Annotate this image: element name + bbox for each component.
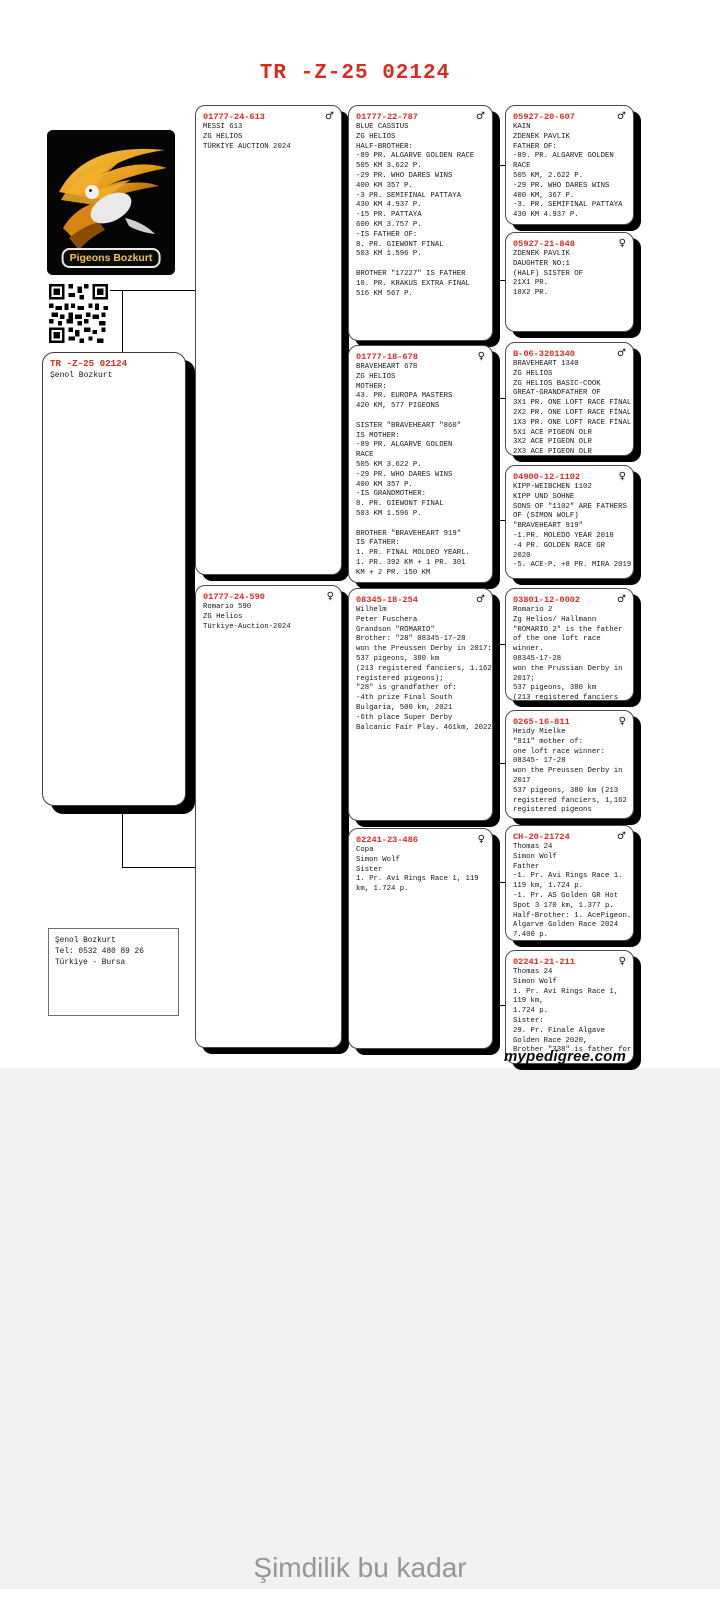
card-text-line: ZG HELIOS	[356, 133, 485, 143]
card-text-line: 08345-17-28	[513, 655, 626, 665]
connector-line	[122, 867, 195, 868]
card-text-line: "28" is grandfather of:	[356, 684, 485, 694]
card-text-line: registered pigeons);	[356, 675, 485, 685]
ring-number: 02241-21-211	[513, 957, 575, 967]
card-text-line: 600 KM 3.757 P.	[356, 221, 485, 231]
card-text-line: BLUE CASSIUS	[356, 123, 485, 133]
pedigree-card: 01777-22-787♂BLUE CASSIUSZG HELIOSHALF-B…	[348, 105, 493, 341]
card-text-line: Half-Brother: 1. AcePigeon.	[513, 912, 626, 922]
card-text-line: 21X1 PR.	[513, 279, 626, 289]
pedigree-card: 0265-16-811♀Heidy Mielke"811" mother of:…	[505, 710, 634, 819]
ring-number: 02241-23-486	[356, 835, 418, 845]
card-text-line: 505 KM 3.622 P.	[356, 461, 485, 471]
card-text-line: -1. Pr. AS Golden GR Hot	[513, 892, 626, 902]
card-text-line: 2017	[513, 777, 626, 787]
card-text-line: 119 km, 1.724 p.	[513, 882, 626, 892]
card-text-line: Spot 3 170 km, 1.377 p.	[513, 902, 626, 912]
ring-number: 0265-16-811	[513, 717, 570, 727]
card-text-line: 18X2 PR.	[513, 289, 626, 299]
card-text-line: RACE	[356, 451, 485, 461]
card-text-line: HALF-BROTHER:	[356, 143, 485, 153]
card-text-line: 516 KM 567 P.	[356, 290, 485, 300]
male-icon: ♂	[617, 112, 626, 122]
male-icon: ♂	[617, 595, 626, 605]
card-text-line: 2X3 ACE PIGEON OLR	[513, 448, 626, 456]
card-text-line: TÜRKİYE AUCTION 2024	[203, 143, 334, 153]
card-text-line: BROTHER "17227" IS FATHER	[356, 270, 485, 280]
female-icon: ♀	[619, 239, 626, 249]
card-text-line: Sister:	[513, 1017, 626, 1027]
pedigree-title: TR -Z-25 02124	[0, 62, 710, 85]
pedigree-card: B-06-3201340♂BRAVEHEART 1340ZG HELIOSZG …	[505, 342, 634, 456]
qr-code	[47, 282, 110, 345]
card-text-line: 8. PR. GIEWONT FINAL	[356, 241, 485, 251]
pedigree-card: 05927-20-607♂KAINZDENEK PAVLIKFATHER OF:…	[505, 105, 634, 225]
card-text-line: ZG HELIOS BASIC-COOK	[513, 380, 626, 390]
connector-line	[343, 703, 344, 938]
male-icon: ♂	[476, 595, 485, 605]
card-text-line: 8. PR. GIEWONT FINAL	[356, 500, 485, 510]
pedigree-card: 02241-23-486♀CopaSimon WolfSister1. Pr. …	[348, 828, 493, 1049]
connector-line	[499, 882, 500, 1006]
connector-line	[492, 222, 499, 223]
card-text-line: -3 PR. SEMIFINAL PATTAYA	[356, 192, 485, 202]
card-text-line: Grandson "ROMARIO"	[356, 626, 485, 636]
connector-line	[492, 462, 499, 463]
card-text-line: won the Preussen Derby in 2017:	[356, 645, 485, 655]
male-icon: ♂	[325, 112, 334, 122]
connector-line	[343, 222, 344, 463]
qr-code-graphic	[47, 282, 110, 345]
card-text-line: won the Prussian Derby in	[513, 665, 626, 675]
card-text-line: Simon Wolf	[356, 856, 485, 866]
card-text-line	[356, 260, 485, 270]
card-text-line: Peter Fuschera	[356, 616, 485, 626]
card-text-line: 10. PR. KRAKUS EXTRA FINAL	[356, 280, 485, 290]
card-text-line: -6th place Super Derby	[356, 714, 485, 724]
card-text-line: 400 KM 357 P.	[356, 481, 485, 491]
pedigree-card: 01777-24-613♂MESSI 613ZG HELIOSTÜRKİYE A…	[195, 105, 342, 575]
female-icon: ♀	[478, 352, 485, 362]
ring-number: 05927-20-607	[513, 112, 575, 122]
connector-line	[492, 937, 499, 938]
mypedigree-watermark: mypedigree.com	[504, 1048, 626, 1065]
ring-number: CH-20-21724	[513, 832, 570, 842]
contact-phone: Tel: 0532 480 89 26	[55, 947, 172, 958]
card-text-line: 430 KM 4.937 P.	[513, 211, 626, 221]
connector-line	[499, 644, 500, 764]
female-icon: ♀	[478, 835, 485, 845]
card-text-line: 2X2 PR. ONE LOFT RACE FİNAL	[513, 409, 626, 419]
card-text-line: registered fanciers, 1,162	[513, 797, 626, 807]
card-text-line: OF (SIMON WOLF)	[513, 512, 626, 522]
card-text-line: GREAT-GRANDFATHER OF	[513, 389, 626, 399]
card-text-line: 1. Pr. Avi Rings Race 1, 119	[356, 875, 485, 885]
card-text-line: Brother: "28" 08345-17-28	[356, 635, 485, 645]
card-text-line: 1. PR. 392 KM + 1 PR. 301	[356, 559, 485, 569]
female-icon: ♀	[619, 717, 626, 727]
card-text-line	[356, 412, 485, 422]
subject-owner: Şenol Bozkurt	[50, 370, 178, 382]
card-text-line: Thomas 24	[513, 843, 626, 853]
ring-number: 03801-12-0002	[513, 595, 580, 605]
card-text-line: -4 PR. GOLDEN RACE GR	[513, 542, 626, 552]
card-text-line: -5. ACE-P. +8 PR. MIRA 2019	[513, 561, 626, 571]
connector-line	[499, 398, 500, 521]
card-text-line: -29 PR. WHO DARES WINS	[356, 172, 485, 182]
ring-number: 01777-24-613	[203, 112, 265, 122]
card-text-line: 3X2 ACE PIGEON OLR	[513, 438, 626, 448]
pedigree-card: CH-20-21724♂Thomas 24Simon WolfFather-1.…	[505, 825, 634, 941]
card-text-line: KIPP UND SOHNE	[513, 493, 626, 503]
card-text-line: 119 km,	[513, 997, 626, 1007]
card-text-line: 1. PR. FINAL MOLDEO YEARL.	[356, 549, 485, 559]
card-text-line: Bulgaria, 500 km, 2021	[356, 704, 485, 714]
pedigree-page: TR -Z-25 02124 Pigeons Bozkurt	[0, 0, 720, 1068]
card-text-line: BROTHER "BRAVEHEART 919"	[356, 530, 485, 540]
male-icon: ♂	[617, 832, 626, 842]
ring-number: 08345-18-254	[356, 595, 418, 605]
card-text-line: of the one loft race	[513, 635, 626, 645]
card-text-line: Balcanic Fair Play. 461km, 2022	[356, 724, 485, 734]
card-text-line: 400 KM 357 P.	[356, 182, 485, 192]
ring-number: 01777-18-678	[356, 352, 418, 362]
card-text-line: 537 pigeons, 380 km	[356, 655, 485, 665]
contact-box: Şenol Bozkurt Tel: 0532 480 89 26 Türkiy…	[48, 928, 179, 1016]
card-text-line: one loft race winner:	[513, 748, 626, 758]
card-text-line: 1.724 p.	[513, 1007, 626, 1017]
card-text-line: 1X3 PR. ONE LOFT RACE FİNAL	[513, 419, 626, 429]
card-text-line: IS MOTHER:	[356, 432, 485, 442]
card-text-line: MESSI 613	[203, 123, 334, 133]
card-text-line: 430 KM 4.937 P.	[356, 201, 485, 211]
card-text-line: 400 KM, 367 P.	[513, 192, 626, 202]
card-text-line: 537 pigeons, 380 km	[513, 684, 626, 694]
card-text-line: "BRAVEHEART 919"	[513, 522, 626, 532]
connector-line	[499, 165, 500, 281]
male-icon: ♂	[617, 349, 626, 359]
card-text-line: Thomas 24	[513, 968, 626, 978]
card-text-line: 505 KM, 2.622 P.	[513, 172, 626, 182]
card-text-line: 5X1 ACE PIGEON OLR	[513, 429, 626, 439]
card-text-line: 3X1 PR. ONE LOFT RACE FİNAL	[513, 399, 626, 409]
card-text-line: 29. Pr. Finale Algave	[513, 1027, 626, 1037]
card-text-line: "ROMARIO 2" is the father	[513, 626, 626, 636]
pedigree-card: 03801-12-0002♂Romario 2Zg Helios/ Hallma…	[505, 588, 634, 701]
card-text-line: KAIN	[513, 123, 626, 133]
card-text-line: -1.PR. MOLEDO YEAR 2018	[513, 532, 626, 542]
card-text-line: SISTER "BRAVEHEART "860"	[356, 422, 485, 432]
card-text-line: RACE	[513, 162, 626, 172]
card-text-line: -IS GRANDMOTHER:	[356, 490, 485, 500]
card-text-line: -89 PR. ALGARVE GOLDEN	[356, 441, 485, 451]
card-text-line: Zg Helios/ Hallmann	[513, 616, 626, 626]
card-text-line: KM + 2 PR. 150 KM	[356, 569, 485, 579]
card-text-line: (HALF) SISTER OF	[513, 270, 626, 280]
card-text-line: FATHER OF:	[513, 143, 626, 153]
card-text-line: ZG HELIOS	[513, 370, 626, 380]
ring-number: B-06-3201340	[513, 349, 575, 359]
card-text-line: BRAVEHEART 678	[356, 363, 485, 373]
card-text-line: ZG HELIOS	[203, 133, 334, 143]
card-text-line: 1. Pr. Avi Rings Race 1,	[513, 988, 626, 998]
card-text-line: ZG Helios	[203, 613, 334, 623]
card-text-line: (213 registered fanciers	[513, 694, 626, 701]
card-text-line: Romario 2	[513, 606, 626, 616]
card-text-line: -4th prize Final South	[356, 694, 485, 704]
male-icon: ♂	[476, 112, 485, 122]
female-icon: ♀	[619, 957, 626, 967]
female-icon: ♀	[327, 592, 334, 602]
pedigree-card: 05927-21-848♀ZDENEK PAVLIKDAUGHTER NO:1(…	[505, 232, 634, 332]
card-text-line: ZDENEK PAVLIK	[513, 133, 626, 143]
card-text-line: ZG HELIOS	[356, 373, 485, 383]
card-text-line: Golden Race 2020,	[513, 1037, 626, 1047]
connector-line	[492, 703, 499, 704]
card-text-line: 503 KM 1.596 P.	[356, 510, 485, 520]
card-text-line: -89 PR. ALGARVE GOLDEN RACE	[356, 152, 485, 162]
card-text-line: Türkiye-Auction-2024	[203, 623, 334, 633]
card-text-line: MOTHER:	[356, 383, 485, 393]
card-text-line: 420 KM, 577 PIGEONS	[356, 402, 485, 412]
card-text-line: 2020	[513, 552, 626, 562]
card-text-line: ZDENEK PAVLIK	[513, 250, 626, 260]
ring-number: 01777-22-787	[356, 112, 418, 122]
card-text-line	[356, 520, 485, 530]
card-text-line: 537 pigeons, 380 km (213	[513, 787, 626, 797]
end-of-feed-text: Şimdilik bu kadar	[0, 1552, 720, 1584]
card-text-line: -29 PR. WHO DARES WINS	[356, 471, 485, 481]
ring-number: 05927-21-848	[513, 239, 575, 249]
card-text-line: KIPP-WEIBCHEN 1102	[513, 483, 626, 493]
ring-number: 04900-12-1102	[513, 472, 580, 482]
card-text-line: Simon Wolf	[513, 978, 626, 988]
card-text-line: 2017;	[513, 675, 626, 685]
contact-name: Şenol Bozkurt	[55, 936, 172, 947]
card-text-line: 7.400 p.	[513, 931, 626, 941]
card-text-line: "811" mother of:	[513, 738, 626, 748]
bottom-strip	[0, 1589, 720, 1600]
card-text-line: -IS FATHER OF:	[356, 231, 485, 241]
card-text-line: registered pigeons	[513, 806, 626, 816]
card-text-line: -29 PR. WHO DARES WINS	[513, 182, 626, 192]
card-text-line: winner.	[513, 645, 626, 655]
card-text-line: -89. PR. ALGARVE GOLDEN	[513, 152, 626, 162]
card-text-line: 08345- 17-28	[513, 757, 626, 767]
card-text-line: DAUGHTER NO:1	[513, 260, 626, 270]
card-text-line: Father	[513, 863, 626, 873]
card-text-line: (213 registered fanciers, 1.162	[356, 665, 485, 675]
card-text-line: IS FATHER:	[356, 539, 485, 549]
card-text-line: Sister	[356, 866, 485, 876]
subject-card: TR -Z-25 02124 Şenol Bozkurt	[42, 352, 186, 806]
card-text-line: 503 KM 1.596 P.	[356, 250, 485, 260]
card-text-line: Wilhelm	[356, 606, 485, 616]
card-text-line: Simon Wolf	[513, 853, 626, 863]
card-text-line: BRAVEHEART 1340	[513, 360, 626, 370]
pedigree-card: 02241-21-211♀Thomas 24Simon Wolf1. Pr. A…	[505, 950, 634, 1064]
card-text-line: Copa	[356, 846, 485, 856]
card-text-line: -1. Pr. Avi Rings Race 1.	[513, 872, 626, 882]
pedigree-card: 04900-12-1102♀KIPP-WEIBCHEN 1102KIPP UND…	[505, 465, 634, 579]
contact-location: Türkiye - Bursa	[55, 958, 172, 969]
female-icon: ♀	[619, 472, 626, 482]
card-text-line: 505 KM 3.622 P.	[356, 162, 485, 172]
pedigree-card: 01777-24-590♀Romario 590ZG HeliosTürkiye…	[195, 585, 342, 1048]
card-text-line: km, 1.724 p.	[356, 885, 485, 895]
card-text-line: Heidy Mielke	[513, 728, 626, 738]
ring-number: 01777-24-590	[203, 592, 265, 602]
pedigree-card: 01777-18-678♀BRAVEHEART 678ZG HELIOSMOTH…	[348, 345, 493, 583]
card-text-line: Algarve Golden Race 2024	[513, 921, 626, 931]
loft-logo-label: Pigeons Bozkurt	[62, 248, 161, 268]
card-text-line: -3. PR. SEMIFINAL PATTAYA	[513, 201, 626, 211]
loft-logo: Pigeons Bozkurt	[47, 130, 175, 275]
subject-ring-number: TR -Z-25 02124	[50, 359, 127, 369]
card-text-line: won the Preussen Derby in	[513, 767, 626, 777]
card-text-line: Romario 590	[203, 603, 334, 613]
card-text-line: SONS OF "1102" ARE FATHERS	[513, 503, 626, 513]
card-text-line: 43. PR. EUROPA MASTERS	[356, 392, 485, 402]
pedigree-card: 08345-18-254♂WilhelmPeter FuscheraGrands…	[348, 588, 493, 821]
card-text-line: -15 PR. PATTAYA	[356, 211, 485, 221]
